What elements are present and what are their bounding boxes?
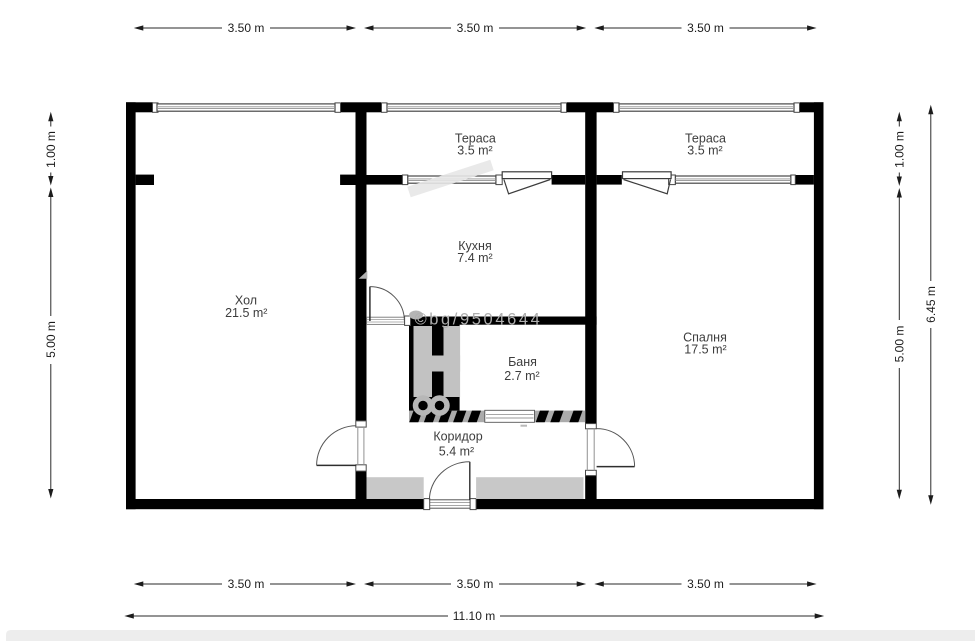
svg-text:3.50 m: 3.50 m <box>687 21 724 35</box>
svg-text:3.50 m: 3.50 m <box>687 577 724 591</box>
svg-text:5.00 m: 5.00 m <box>892 326 906 363</box>
svg-text:2.7 m²: 2.7 m² <box>504 369 539 383</box>
svg-text:Коридор: Коридор <box>433 430 482 444</box>
svg-text:3.50 m: 3.50 m <box>228 577 265 591</box>
svg-text:1.00 m: 1.00 m <box>892 131 906 168</box>
svg-text:11.10 m: 11.10 m <box>453 609 495 623</box>
svg-text:6.45 m: 6.45 m <box>924 286 938 323</box>
svg-text:3.5 m²: 3.5 m² <box>457 144 492 158</box>
svg-text:5.4 m²: 5.4 m² <box>439 445 474 459</box>
svg-text:3.50 m: 3.50 m <box>457 577 494 591</box>
svg-text:7.4 m²: 7.4 m² <box>457 251 492 265</box>
svg-text:3.50 m: 3.50 m <box>228 21 265 35</box>
svg-text:5.00 m: 5.00 m <box>44 321 58 358</box>
svg-text:21.5 m²: 21.5 m² <box>225 306 267 320</box>
svg-text:17.5 m²: 17.5 m² <box>684 342 726 356</box>
svg-text:1.00 m: 1.00 m <box>44 131 58 168</box>
svg-text:3.5 m²: 3.5 m² <box>687 144 722 158</box>
svg-text:3.50 m: 3.50 m <box>457 21 494 35</box>
svg-text:©bg/9504644: ©bg/9504644 <box>415 311 543 329</box>
svg-text:Баня: Баня <box>508 355 537 369</box>
